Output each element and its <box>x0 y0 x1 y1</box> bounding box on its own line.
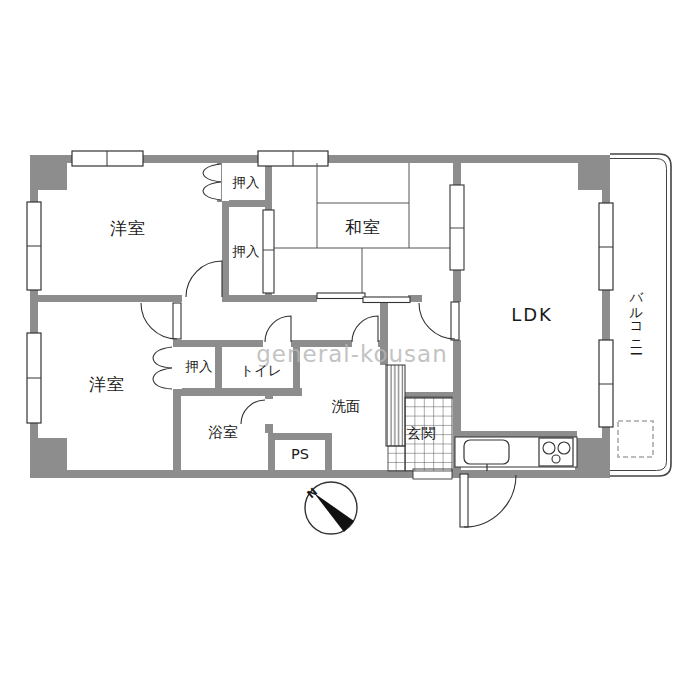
wall-corridor-north-a <box>222 295 317 302</box>
opening-bedroom-top-door <box>182 294 222 303</box>
bifold-doors <box>153 164 221 389</box>
wall-bedrooms-divider <box>30 295 182 302</box>
wall-toilet-west <box>215 340 222 392</box>
kitchen-counter-edge <box>455 431 577 437</box>
door-washroom <box>352 316 378 342</box>
opening-bathroom-door <box>264 399 274 424</box>
window-left-1 <box>27 202 41 290</box>
label-pipe-space: PS <box>291 446 309 462</box>
bifold-closet-top <box>203 164 221 182</box>
label-western-room-bottom: 洋室 <box>89 374 125 394</box>
bifold-closet-top-2 <box>203 182 221 200</box>
label-closet-top: 押入 <box>232 174 261 190</box>
door-entrance <box>464 475 516 527</box>
label-ldk: LDK <box>511 304 553 325</box>
label-entrance: 玄関 <box>407 425 436 441</box>
label-closet-mid: 押入 <box>232 243 261 259</box>
door-toilet <box>265 316 291 342</box>
bifold-closet-bottom <box>153 347 172 368</box>
wall-closet-mid-west <box>222 200 229 295</box>
label-closet-bottom: 押入 <box>185 358 214 374</box>
label-washroom: 洗面 <box>332 398 361 414</box>
window-right-2 <box>599 340 613 427</box>
door-entrance-leaf <box>460 474 468 527</box>
floorplan-svg: general-kousan 洋室 和室 LDK バルコニー 押入 押入 洋室 … <box>0 0 700 700</box>
wall-closet-divider <box>222 200 272 207</box>
opening-closet-top <box>222 163 229 201</box>
label-balcony: バルコニー <box>629 282 645 355</box>
fusuma-japanese-ldk <box>450 185 464 270</box>
fusuma-closet-mid <box>263 210 274 293</box>
door-hall-ldk-leaf <box>451 302 459 340</box>
wall-ps-east <box>325 433 332 472</box>
entrance-tile-grid-2 <box>388 446 405 471</box>
window-right-1 <box>599 203 613 290</box>
watermark-text: general-kousan <box>256 341 448 367</box>
window-top-1 <box>72 151 143 166</box>
door-bedroom-bottom <box>141 303 177 339</box>
compass: N <box>305 482 357 534</box>
floorplan-image: general-kousan 洋室 和室 LDK バルコニー 押入 押入 洋室 … <box>0 0 700 700</box>
label-bathroom: 浴室 <box>209 424 239 440</box>
wall-bathroom-north <box>173 388 302 396</box>
shoe-cabinet <box>386 365 405 446</box>
door-bathroom <box>241 400 265 424</box>
label-toilet: トイレ <box>240 362 281 378</box>
door-bedroom-bottom-leaf <box>173 303 181 339</box>
wall-ps-west <box>268 433 275 472</box>
wall-ps-north <box>268 433 332 440</box>
label-western-room-top: 洋室 <box>110 218 146 238</box>
bifold-closet-bottom-2 <box>153 368 172 389</box>
entrance-area <box>386 365 452 471</box>
door-bedroom-top <box>186 261 222 297</box>
kitchen <box>455 431 577 471</box>
label-japanese-room: 和室 <box>345 217 381 237</box>
opening-closet-bottom <box>172 347 182 389</box>
wall-bottom <box>30 470 610 478</box>
kitchen-sink <box>464 440 509 464</box>
door-hall-ldk <box>419 303 455 339</box>
sliding-japanese-corridor <box>317 293 410 303</box>
window-left-2 <box>27 333 41 423</box>
